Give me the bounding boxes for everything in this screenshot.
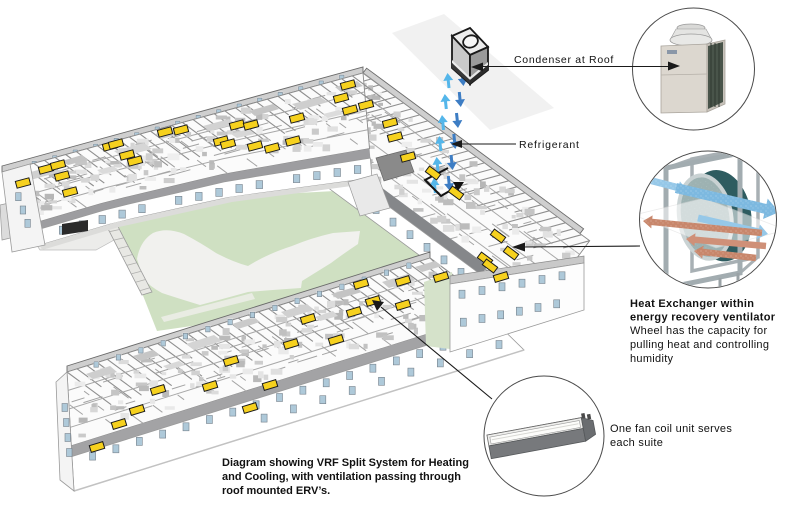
svg-text:Wheel has the capacity for: Wheel has the capacity for (630, 325, 767, 337)
svg-text:Diagram showing VRF Split Syst: Diagram showing VRF Split System for Hea… (222, 457, 469, 469)
svg-text:energy recovery ventilator: energy recovery ventilator (630, 312, 776, 324)
svg-text:pulling heat and controlling: pulling heat and controlling (630, 339, 769, 351)
svg-text:roof mounted ERV’s.: roof mounted ERV’s. (222, 485, 330, 497)
svg-text:each suite: each suite (610, 437, 663, 449)
svg-text:and Cooling, with ventilation: and Cooling, with ventilation passing th… (222, 471, 461, 483)
svg-text:One fan coil unit serves: One fan coil unit serves (610, 423, 732, 435)
svg-text:humidity: humidity (630, 353, 674, 365)
svg-text:Heat Exchanger within: Heat Exchanger within (630, 298, 754, 310)
svg-text:Condenser at Roof: Condenser at Roof (514, 54, 614, 66)
svg-text:Refrigerant: Refrigerant (519, 139, 580, 151)
